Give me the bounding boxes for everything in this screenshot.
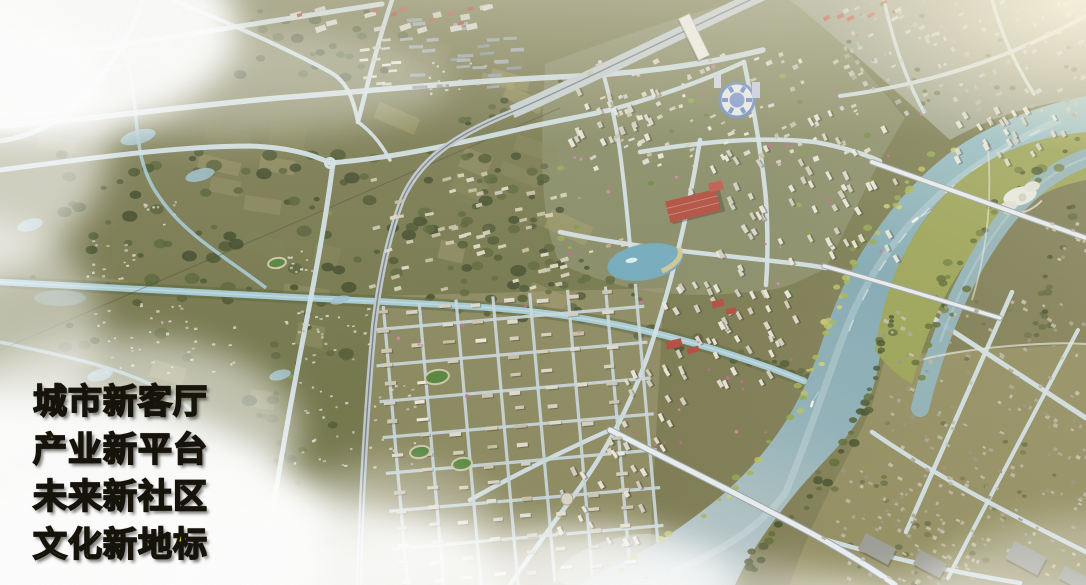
slogan-line-2: 产业新平台 <box>33 427 208 475</box>
slogan-line-4: 文化新地标 <box>33 522 208 570</box>
slogan-line-3: 未来新社区 <box>33 474 208 522</box>
aerial-city-rendering: 城市新客厅 产业新平台 未来新社区 文化新地标 <box>0 0 1086 585</box>
slogan-line-1: 城市新客厅 <box>33 379 208 427</box>
slogan-overlay: 城市新客厅 产业新平台 未来新社区 文化新地标 <box>33 379 208 569</box>
